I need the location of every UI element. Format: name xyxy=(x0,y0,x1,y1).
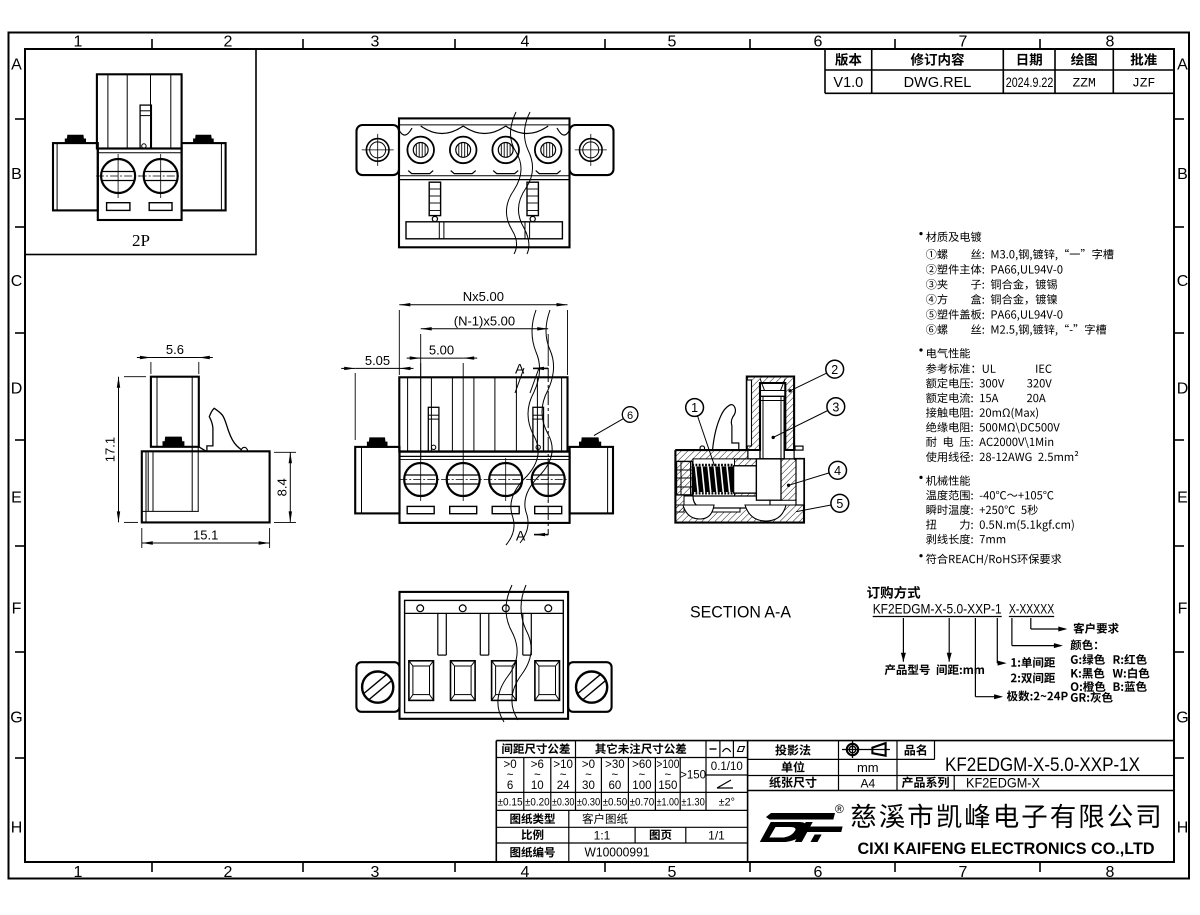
svg-text:±0.30: ±0.30 xyxy=(577,797,601,809)
svg-text:3: 3 xyxy=(832,400,839,414)
svg-text:F: F xyxy=(12,601,22,618)
svg-text:30: 30 xyxy=(582,780,595,792)
svg-text:5.6: 5.6 xyxy=(166,342,184,357)
svg-text:5: 5 xyxy=(668,864,677,881)
svg-text:H: H xyxy=(1177,820,1189,837)
svg-text:±0.20: ±0.20 xyxy=(525,797,550,809)
svg-text:E: E xyxy=(1177,490,1188,507)
svg-text:1/1: 1/1 xyxy=(708,829,725,843)
svg-text:A4: A4 xyxy=(860,776,875,790)
svg-text:G: G xyxy=(10,710,22,727)
svg-text:2: 2 xyxy=(224,864,233,881)
svg-text:±2°: ±2° xyxy=(719,797,735,809)
svg-text:6: 6 xyxy=(627,410,633,422)
svg-text:B: B xyxy=(11,166,22,183)
svg-text:8: 8 xyxy=(1106,864,1115,881)
svg-text:1: 1 xyxy=(74,864,83,881)
svg-text:±0.70: ±0.70 xyxy=(630,797,655,809)
svg-text:2024.9.22: 2024.9.22 xyxy=(1006,75,1054,90)
svg-text:8: 8 xyxy=(1106,34,1115,51)
svg-text:CIXI KAIFENG ELECTRONICS CO.,L: CIXI KAIFENG ELECTRONICS CO.,LTD xyxy=(858,840,1155,858)
svg-text:5: 5 xyxy=(668,34,677,51)
svg-text:10: 10 xyxy=(531,780,544,792)
svg-text:3: 3 xyxy=(371,34,380,51)
svg-text:A: A xyxy=(1177,57,1188,74)
svg-text:C: C xyxy=(1177,273,1189,290)
svg-text:2: 2 xyxy=(224,34,233,51)
svg-text:1: 1 xyxy=(691,401,698,415)
svg-text:B: B xyxy=(1177,166,1188,183)
svg-text:2P: 2P xyxy=(132,231,150,250)
svg-text:4: 4 xyxy=(521,34,530,51)
svg-text:8.4: 8.4 xyxy=(274,478,289,496)
svg-text:4: 4 xyxy=(834,464,841,478)
svg-text:3: 3 xyxy=(371,864,380,881)
svg-text:±0.30: ±0.30 xyxy=(552,797,574,809)
svg-text:1: 1 xyxy=(74,34,83,51)
svg-text:JZF: JZF xyxy=(1132,76,1155,91)
svg-text:±1.00: ±1.00 xyxy=(657,797,679,809)
svg-text:D: D xyxy=(11,381,23,398)
svg-text:5.00: 5.00 xyxy=(429,343,454,358)
svg-text:6: 6 xyxy=(814,864,823,881)
svg-text:®: ® xyxy=(835,802,844,816)
svg-text:1:1: 1:1 xyxy=(594,829,611,843)
svg-text:KF2EDGM-X-5.0-XXP-1X: KF2EDGM-X-5.0-XXP-1X xyxy=(945,755,1140,776)
svg-text:100: 100 xyxy=(632,780,651,792)
svg-text:0.1/10: 0.1/10 xyxy=(711,761,743,773)
svg-text:ZZM: ZZM xyxy=(1072,76,1095,91)
svg-text:150: 150 xyxy=(658,780,677,792)
svg-text:A: A xyxy=(11,57,22,74)
svg-text:(N-1)x5.00: (N-1)x5.00 xyxy=(454,313,515,328)
svg-text:±1.30: ±1.30 xyxy=(681,797,704,809)
svg-text:4: 4 xyxy=(521,864,530,881)
svg-text:7: 7 xyxy=(959,864,968,881)
svg-text:7: 7 xyxy=(959,34,968,51)
svg-text:C: C xyxy=(11,273,23,290)
svg-text:2: 2 xyxy=(831,363,838,377)
svg-text:H: H xyxy=(11,820,23,837)
svg-text:KF2EDGM-X-5.0-XXP-1: KF2EDGM-X-5.0-XXP-1 xyxy=(873,601,1002,617)
svg-text:mm: mm xyxy=(857,760,879,775)
svg-text:Nx5.00: Nx5.00 xyxy=(463,289,504,304)
svg-text:V1.0: V1.0 xyxy=(833,75,863,91)
svg-text:5.05: 5.05 xyxy=(365,353,390,368)
svg-text:W10000991: W10000991 xyxy=(585,846,650,860)
svg-text:A: A xyxy=(515,360,525,376)
svg-text:15.1: 15.1 xyxy=(193,528,218,543)
svg-text:24: 24 xyxy=(557,780,570,792)
svg-text:X-XXXXX: X-XXXXX xyxy=(1009,601,1055,617)
svg-text:D: D xyxy=(1177,381,1189,398)
svg-text:17.1: 17.1 xyxy=(103,437,118,462)
svg-text:>150: >150 xyxy=(680,770,706,782)
svg-text:6: 6 xyxy=(814,34,823,51)
svg-text:A: A xyxy=(516,528,526,544)
svg-text:SECTION A-A: SECTION A-A xyxy=(690,603,792,622)
svg-text:±0.15: ±0.15 xyxy=(498,797,523,809)
svg-text:G: G xyxy=(1176,710,1188,727)
svg-text:6: 6 xyxy=(507,780,513,792)
svg-text:F: F xyxy=(1178,601,1188,618)
svg-text:60: 60 xyxy=(609,780,622,792)
svg-text:KF2EDGM-X: KF2EDGM-X xyxy=(966,775,1040,790)
svg-text:5: 5 xyxy=(836,497,843,511)
svg-text:DWG.REL: DWG.REL xyxy=(904,75,972,91)
svg-text:±0.50: ±0.50 xyxy=(603,797,628,809)
svg-text:E: E xyxy=(11,490,22,507)
